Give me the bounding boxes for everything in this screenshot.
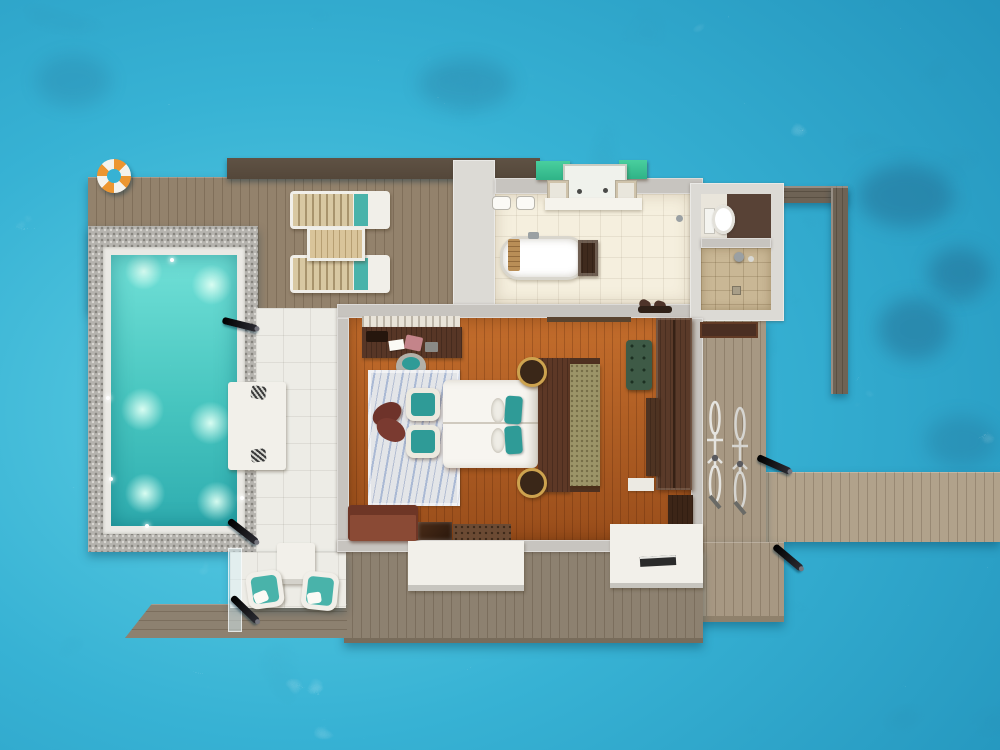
media-ledge [547,317,631,322]
desk-book [388,339,404,351]
pool-water [111,255,237,526]
jetty-walkway [760,472,1000,542]
terrace-armchair [300,570,340,612]
villa-floorplan-scene [0,0,1000,750]
vanity-faucet [577,189,582,194]
desk-tablet [425,342,438,352]
privacy-wall-right [831,186,848,394]
reef-shadow [925,415,997,467]
reef-shadow [878,298,950,360]
water-sparkle [145,524,149,528]
lounger-slats [293,194,353,226]
entry-mat [700,322,758,338]
lounger-slats [293,258,353,290]
toilet-bowl [712,205,735,234]
vanity-counter [545,198,642,210]
bed-pillow-teal [504,425,523,454]
wc-shower-divider [701,238,771,248]
life-ring [97,159,131,193]
sofa [348,505,418,541]
console-glass [418,522,452,540]
shower-head [734,252,744,262]
pool-shimmer [111,255,237,526]
vanity-faucet [603,188,608,193]
reef-shadow [928,248,990,298]
bathroom-shelf-cabinet [578,240,598,276]
water-sparkle [170,258,174,262]
water-sparkle [106,396,110,400]
desk-chair-cushion [402,357,420,370]
bedside-lamp [517,357,547,387]
lounger-towel [354,194,368,226]
coat-rack [638,306,672,313]
south-landing [408,541,524,591]
shower-drain [732,286,741,295]
sun-lounger [290,191,390,229]
towel-ring [676,215,683,222]
ceiling-light [492,196,511,210]
dresser [646,398,659,476]
daybed-pillow [250,385,267,400]
water-sparkle [240,496,244,500]
headboard-bench [570,364,600,486]
shower-control [748,256,754,262]
interior-step [628,478,654,491]
desk-tray [366,331,388,342]
ceiling-light [516,196,535,210]
bed-mattress [443,380,538,468]
bed-pillow-teal [504,395,523,424]
lounger-side-table [307,227,365,261]
reef-shadow [36,55,111,107]
bed-fold-line [443,422,538,424]
console-media-unit [513,522,604,539]
bed-pillow-white [491,398,505,423]
bedside-lamp [517,468,547,498]
bed-pillow-white [491,428,505,453]
bathtub-wood-caddy [508,239,520,271]
bedroom-armchair [406,388,440,421]
bathtub-faucet [528,232,539,239]
reef-shadow [418,58,513,110]
life-ring-hole [107,169,121,183]
terrace-armchair [245,569,286,611]
console-woven-bench [453,524,511,540]
reef-shadow [858,165,953,227]
daybed-pillow [250,448,266,462]
bicycles [700,396,758,522]
wardrobe-door-line [673,320,675,488]
entrance-deck-corner [698,542,784,622]
water-sparkle [109,477,113,481]
green-bench [626,340,652,390]
magazine [640,555,676,567]
glass-balustrade [228,548,242,632]
lounger-towel [354,258,368,290]
bedroom-armchair [406,425,440,458]
bathroom-west-wall [453,160,495,312]
